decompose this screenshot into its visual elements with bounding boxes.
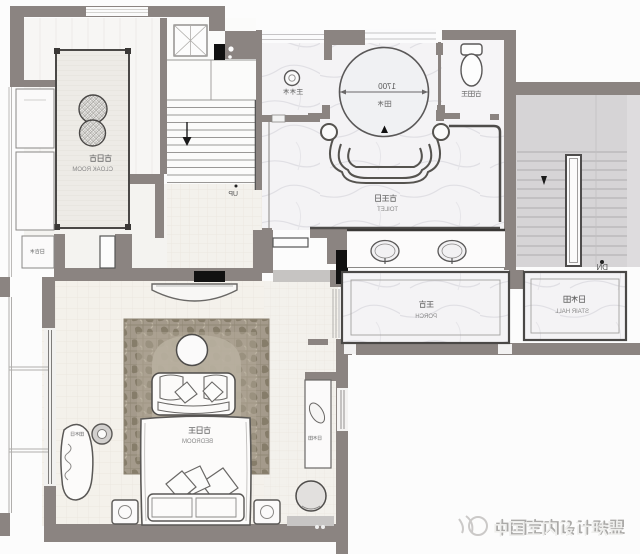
svg-text:STAIR HALL: STAIR HALL	[554, 309, 589, 315]
svg-text:BEDROOM: BEDROOM	[182, 439, 213, 445]
svg-text:1700: 1700	[378, 82, 396, 91]
svg-text:DN: DN	[596, 263, 608, 272]
svg-text:TOILET: TOILET	[377, 207, 398, 213]
svg-text:PORCH: PORCH	[415, 314, 437, 320]
svg-text:CLOAK ROOM: CLOAK ROOM	[72, 167, 113, 173]
svg-text:UP: UP	[228, 191, 238, 198]
